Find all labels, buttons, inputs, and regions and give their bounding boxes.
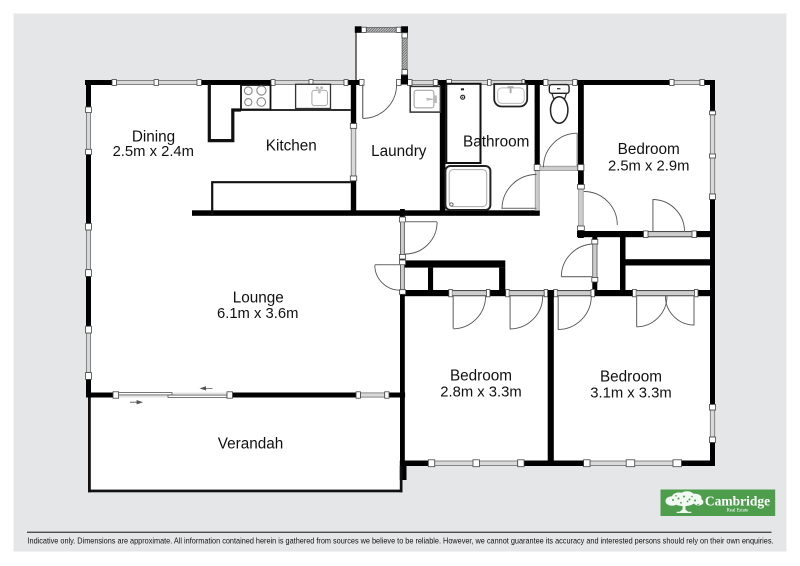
svg-text:Real Estate: Real Estate	[727, 509, 749, 514]
svg-text:2.8m x 3.3m: 2.8m x 3.3m	[440, 385, 521, 401]
svg-text:Indicative only. Dimensions ar: Indicative only. Dimensions are approxim…	[28, 536, 774, 546]
svg-text:2.5m x 2.4m: 2.5m x 2.4m	[113, 144, 194, 160]
svg-text:3.1m x 3.3m: 3.1m x 3.3m	[590, 386, 671, 402]
svg-text:Lounge: Lounge	[233, 289, 284, 306]
svg-text:Bedroom: Bedroom	[618, 141, 680, 158]
svg-text:Bedroom: Bedroom	[450, 368, 512, 385]
svg-text:Verandah: Verandah	[218, 436, 284, 453]
svg-text:Kitchen: Kitchen	[266, 137, 317, 154]
svg-text:6.1m x 3.6m: 6.1m x 3.6m	[217, 306, 298, 322]
svg-text:2.5m x 2.9m: 2.5m x 2.9m	[608, 158, 689, 174]
svg-text:Cambridge: Cambridge	[705, 494, 770, 509]
svg-text:Bathroom: Bathroom	[463, 134, 529, 151]
svg-text:Bedroom: Bedroom	[600, 369, 662, 386]
svg-text:Laundry: Laundry	[371, 143, 427, 160]
